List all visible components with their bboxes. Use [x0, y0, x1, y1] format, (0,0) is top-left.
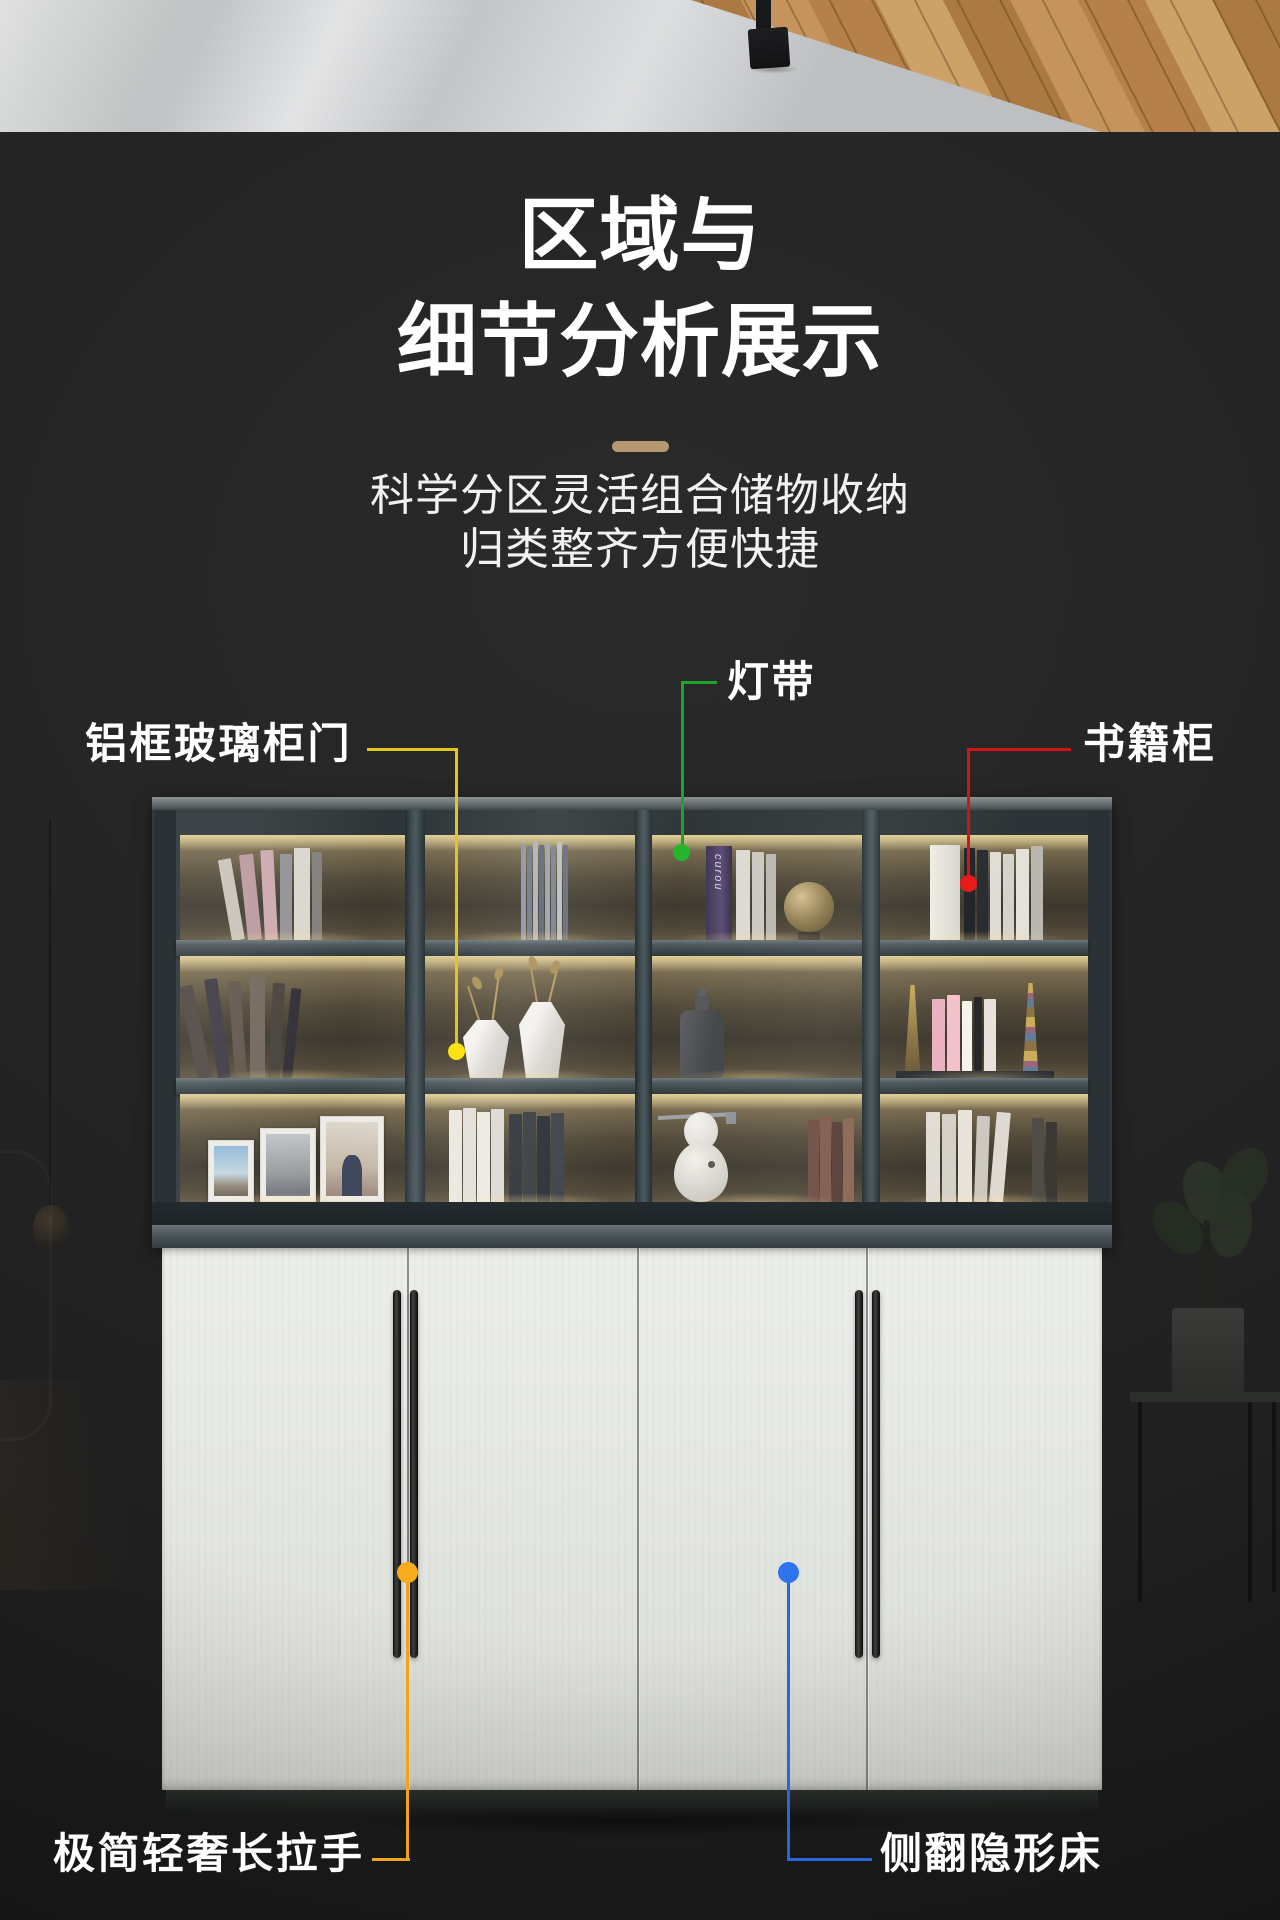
- book-spine: [1031, 846, 1043, 940]
- book-spine: [294, 848, 310, 940]
- magazine-spine: [563, 845, 568, 940]
- callout-line-hidden-bed: [787, 1858, 872, 1861]
- plant-pot: [1172, 1308, 1244, 1396]
- plant-leaf: [1211, 1140, 1277, 1216]
- cabinet-door-2: [409, 1248, 637, 1790]
- pendant-lamp-cord: [49, 820, 51, 1215]
- plant-leaf: [1174, 1154, 1243, 1236]
- door-long-handle: [855, 1290, 863, 1658]
- side-table-leg: [1138, 1402, 1142, 1602]
- book-spine: [843, 1118, 854, 1202]
- book-spine: [491, 1109, 504, 1202]
- callout-dot-glass-door: [448, 1043, 465, 1060]
- compartment-r3c3: [652, 1094, 862, 1202]
- book-spine-pink: [947, 995, 960, 1071]
- book-spine: [1003, 854, 1014, 940]
- cat-bookend: [1022, 983, 1039, 1071]
- bookend-base: [896, 1071, 1054, 1078]
- compartment-r3c4: [880, 1094, 1088, 1202]
- bottle-vase-cap: [698, 988, 706, 996]
- book-spine: [926, 1112, 940, 1202]
- ornament-stand: [798, 932, 820, 940]
- book-spine: [962, 1001, 972, 1071]
- book-spine: [282, 988, 301, 1078]
- page-title-line-1: 区域与: [0, 194, 1280, 278]
- plant-leaf: [1143, 1192, 1212, 1264]
- branch-stem: [491, 974, 500, 1024]
- photo-figure: [342, 1155, 363, 1196]
- subtitle-line-2: 归类整齐方便快捷: [0, 525, 1280, 576]
- door-long-handle: [393, 1290, 401, 1658]
- chair-silhouette: [0, 1150, 52, 1441]
- callout-label-long-handle: 极简轻奢长拉手: [53, 1832, 365, 1876]
- cabinet-bottom-rail: [152, 1202, 1112, 1225]
- book-spine: [260, 850, 278, 940]
- book-spine: [280, 854, 292, 940]
- compartment-r2c4: [880, 956, 1088, 1078]
- callout-line-book-cabinet: [967, 748, 1071, 751]
- book-spine: [228, 981, 247, 1078]
- magazine-spine: [533, 842, 538, 940]
- room-photo-strip: [0, 0, 1280, 132]
- plant-stems: [1192, 1220, 1222, 1315]
- photo-frame: [320, 1116, 384, 1202]
- side-table-top: [1130, 1392, 1280, 1402]
- callout-label-glass-door: 铝框玻璃柜门: [85, 722, 352, 766]
- book-spine: [463, 1108, 476, 1202]
- floor-glow-left: [0, 1380, 160, 1590]
- branch-leaf: [527, 956, 539, 971]
- compartment-r1c4: [880, 835, 1088, 940]
- bottle-vase-body: [680, 1010, 724, 1078]
- subtitle-line-1: 科学分区灵活组合储物收纳: [0, 471, 1280, 522]
- book-spine: [449, 1110, 462, 1202]
- shelf-board: [176, 1078, 1088, 1094]
- glass-door-frame: [862, 810, 880, 1225]
- book-spine: [808, 1120, 819, 1202]
- branch-leaf: [548, 959, 561, 975]
- book-spine: [752, 852, 764, 940]
- callout-line-long-handle: [372, 1858, 410, 1861]
- book-spine: [1016, 849, 1029, 940]
- book-spine: [1046, 1122, 1057, 1202]
- callout-dot-hidden-bed: [778, 1562, 799, 1583]
- plant-leaf: [1206, 1189, 1257, 1260]
- magazine-spine: [539, 845, 544, 940]
- book-spine: [523, 1112, 536, 1202]
- callout-dot-light-strip: [673, 844, 690, 861]
- compartment-r3c1: [180, 1094, 405, 1202]
- sphere-ornament: [784, 882, 834, 932]
- door-gap: [637, 1248, 639, 1790]
- glass-door-frame: [405, 810, 425, 1225]
- compartment-r3c2: [425, 1094, 635, 1202]
- callout-dot-long-handle: [397, 1562, 418, 1583]
- book-spine: [989, 1112, 1011, 1202]
- compartment-r2c3: [652, 956, 862, 1078]
- book-spine-white: [930, 845, 960, 940]
- door-long-handle: [872, 1290, 880, 1658]
- callout-label-book-cabinet: 书籍柜: [1083, 722, 1217, 766]
- bookcase-cabinet: curou: [152, 797, 1112, 1812]
- book-spine: [942, 1114, 956, 1202]
- cabinet-door-1: [162, 1248, 407, 1790]
- gourd-vase-body: [674, 1142, 728, 1202]
- book-spine: [312, 852, 322, 940]
- cabinet-plinth: [166, 1790, 1098, 1812]
- book-spine: [551, 1113, 564, 1202]
- compartment-r1c1: [180, 835, 405, 940]
- book-spine: [537, 1116, 550, 1202]
- callout-line-light-strip: [681, 681, 684, 852]
- page-title-line-2: 细节分析展示: [0, 300, 1280, 384]
- book-spine: [977, 850, 988, 940]
- title-divider: [612, 441, 669, 452]
- photo-frame: [208, 1140, 254, 1202]
- callout-line-glass-door: [455, 748, 458, 1051]
- book-spine: [477, 1112, 490, 1202]
- book-spine: [990, 852, 1001, 940]
- book-spine: [958, 1110, 972, 1202]
- magazine-spine: [527, 846, 532, 940]
- magazine-spine: [551, 846, 556, 940]
- faceted-vase: [519, 1002, 565, 1078]
- callout-line-long-handle: [406, 1572, 409, 1861]
- faceted-vase: [463, 1020, 509, 1078]
- callout-line-hidden-bed: [787, 1572, 790, 1861]
- cabinet-door-4: [868, 1248, 1102, 1790]
- cat-bookend: [904, 985, 921, 1071]
- photo-frame-picture: [266, 1134, 310, 1196]
- table-leg-shadow: [736, 62, 810, 76]
- photo-frame-picture: [214, 1146, 248, 1196]
- door-long-handle: [410, 1290, 418, 1658]
- callout-line-book-cabinet: [967, 748, 970, 883]
- book-spine: [239, 854, 262, 940]
- book-spine: [820, 1116, 831, 1202]
- glass-door-frame: [635, 810, 652, 1225]
- magazine-spine: [557, 842, 562, 940]
- side-table-leg: [1272, 1402, 1276, 1592]
- callout-line-glass-door: [367, 748, 458, 751]
- book-spine: [1032, 1118, 1044, 1202]
- vase-spot: [708, 1161, 715, 1168]
- shelf-board: [176, 940, 1088, 956]
- callout-label-light-strip: 灯带: [727, 660, 816, 704]
- callout-label-hidden-bed: 侧翻隐形床: [880, 1832, 1103, 1876]
- book-spine: [984, 999, 996, 1071]
- photo-frame: [260, 1128, 316, 1202]
- plant-silhouette: [1130, 1140, 1280, 1610]
- book-spine: [974, 1116, 990, 1202]
- photo-frame-picture: [326, 1122, 378, 1196]
- book-spine: [832, 1122, 842, 1202]
- book-spine-text: curou: [712, 854, 724, 892]
- side-table-leg: [1248, 1402, 1252, 1602]
- book-spine: [974, 997, 982, 1071]
- book-spine-purple: curou: [706, 846, 732, 940]
- cabinet-door-3: [639, 1248, 866, 1790]
- magazine-spine: [545, 843, 550, 940]
- branch-leaf: [493, 965, 505, 981]
- pendant-lamp-bulb: [33, 1205, 69, 1253]
- book-spine: [736, 850, 750, 940]
- mid-separator-board: [152, 1225, 1112, 1248]
- book-spine: [509, 1114, 522, 1202]
- callout-line-light-strip: [681, 681, 717, 684]
- magazine-spine: [521, 844, 526, 940]
- vase-rod-block: [726, 1112, 736, 1124]
- product-detail-poster: 区域与 细节分析展示 科学分区灵活组合储物收纳 归类整齐方便快捷: [0, 0, 1280, 1920]
- book-spine-pink: [932, 999, 945, 1071]
- door-gap: [866, 1248, 868, 1790]
- callout-dot-book-cabinet: [960, 875, 977, 892]
- lower-cabinet: [162, 1248, 1102, 1790]
- book-spine: [766, 854, 776, 940]
- branch-leaf: [470, 975, 484, 991]
- compartment-r2c1: [180, 956, 405, 1078]
- book-spine: [250, 976, 265, 1078]
